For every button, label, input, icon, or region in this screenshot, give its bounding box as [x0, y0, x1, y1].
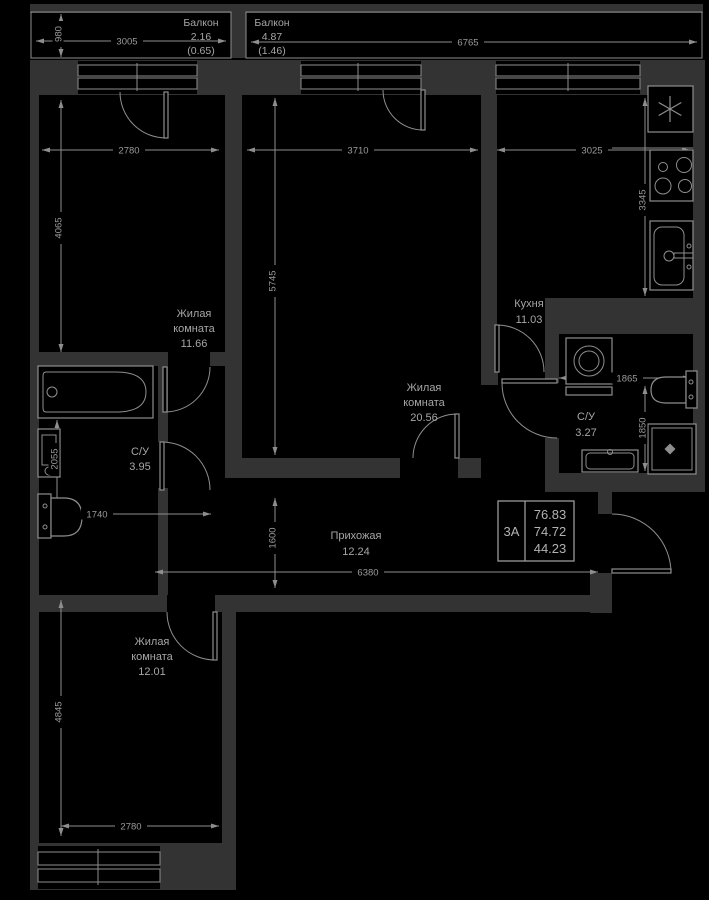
wall: [225, 458, 400, 478]
wall: [231, 13, 246, 58]
door-bathroom1: [502, 379, 557, 438]
svg-text:11.03: 11.03: [516, 314, 543, 326]
dim-balcony-main-width: 6765: [457, 38, 478, 49]
dim-balcony-left-width: 3005: [116, 37, 137, 48]
room-labels: Балкон 2.16 (0.65) Балкон 4.87 (1.46) Жи…: [129, 17, 596, 678]
label-balcony-main: Балкон 4.87 (1.46): [254, 17, 289, 57]
svg-text:12.24: 12.24: [342, 546, 370, 558]
dimension-lines: [36, 14, 697, 836]
window-living2: [301, 61, 421, 94]
wall: [30, 352, 168, 366]
svg-text:Балкон: Балкон: [183, 17, 218, 29]
svg-text:3.27: 3.27: [575, 427, 596, 439]
svg-text:Кухня: Кухня: [514, 298, 543, 310]
svg-text:Жилая: Жилая: [135, 636, 170, 648]
shower-icon: [648, 424, 696, 474]
dim-living2-height: 5745: [268, 270, 279, 291]
label-hallway: Прихожая 12.24: [331, 530, 382, 558]
wall: [458, 458, 481, 478]
kitchen-sink-icon: [650, 221, 693, 290]
svg-text:Прихожая: Прихожая: [331, 530, 382, 542]
ventilation-shaft: [648, 86, 693, 132]
label-living1: Жилая комната 11.66: [173, 308, 215, 350]
area-living: 44.23: [534, 541, 567, 556]
svg-text:4.87: 4.87: [262, 31, 283, 43]
dim-living3-height: 4845: [54, 701, 65, 722]
label-living3: Жилая комната 12.01: [131, 636, 173, 678]
dim-kitchen-height: 3345: [638, 189, 649, 210]
svg-text:20.56: 20.56: [410, 412, 438, 424]
window-living3: [38, 846, 160, 889]
window-kitchen: [496, 61, 640, 94]
door-kitchen: [495, 325, 544, 372]
door-bathroom2: [160, 442, 210, 490]
floor-plan: 3005 6765 980 2780 3710 3025 4065 5745 3…: [0, 0, 709, 900]
svg-text:С/У: С/У: [131, 446, 150, 458]
washing-machine-icon: [566, 338, 612, 395]
balcony-main-outline: [246, 12, 702, 58]
wall: [545, 473, 703, 492]
dim-living2-width: 3710: [347, 146, 368, 157]
floor-plan-drawing: 3005 6765 980 2780 3710 3025 4065 5745 3…: [0, 0, 709, 900]
label-bathroom1: С/У 3.27: [575, 411, 596, 439]
svg-text:Жилая: Жилая: [407, 382, 442, 394]
toilet-bathroom1-icon: [651, 371, 697, 408]
door-entrance: [612, 514, 671, 573]
label-bathroom2: С/У 3.95: [129, 446, 150, 473]
wall: [545, 438, 559, 475]
dim-living1-height: 4065: [54, 217, 65, 238]
label-kitchen: Кухня 11.03: [514, 298, 543, 326]
bathtub-icon: [38, 366, 153, 418]
svg-text:3.95: 3.95: [129, 461, 150, 473]
dim-living1-width: 2780: [118, 146, 139, 157]
svg-text:(0.65): (0.65): [187, 45, 214, 57]
svg-text:12.01: 12.01: [138, 666, 166, 678]
dim-bathroom2-height: 2055: [50, 448, 61, 469]
dim-balcony-depth: 980: [54, 26, 65, 42]
svg-text:комната: комната: [131, 651, 173, 663]
dim-hallway-height: 1600: [268, 527, 279, 548]
area-total: 76.83: [534, 507, 567, 522]
door-living1: [163, 367, 210, 412]
toilet-bathroom2-icon: [38, 494, 82, 538]
area-reduced: 74.72: [534, 524, 567, 539]
dim-kitchen-width: 3025: [581, 146, 602, 157]
wall: [30, 595, 167, 612]
wall: [545, 334, 559, 383]
svg-text:(1.46): (1.46): [258, 45, 285, 57]
svg-text:С/У: С/У: [577, 411, 596, 423]
wall: [481, 372, 498, 385]
label-balcony-left: Балкон 2.16 (0.65): [183, 17, 218, 57]
dim-living3-width: 2780: [120, 822, 141, 833]
door-balcony-living1: [120, 92, 168, 138]
dim-bathroom1-width: 1865: [616, 374, 637, 385]
svg-text:комната: комната: [173, 323, 215, 335]
dim-bathroom1-height: 1850: [638, 417, 649, 438]
sink-bathroom1-icon: [582, 450, 638, 473]
dim-bathroom2-width: 1740: [86, 510, 107, 521]
wall: [598, 492, 612, 514]
door-balcony-living2: [383, 90, 425, 130]
stove-icon: [650, 150, 693, 201]
wall: [225, 95, 242, 478]
door-living3: [167, 612, 217, 660]
apartment-type: 3А: [504, 524, 520, 539]
svg-text:комната: комната: [403, 397, 445, 409]
wall: [545, 298, 693, 334]
window-living1: [78, 61, 197, 94]
apartment-info-box: 3А 76.83 74.72 44.23: [498, 501, 574, 561]
dim-hallway-width: 6380: [357, 568, 378, 579]
dimension-labels: 3005 6765 980 2780 3710 3025 4065 5745 3…: [49, 21, 649, 833]
svg-text:2.16: 2.16: [191, 31, 212, 43]
svg-text:11.66: 11.66: [181, 338, 208, 350]
wall: [158, 488, 168, 595]
wall: [210, 352, 230, 366]
svg-text:Балкон: Балкон: [254, 17, 289, 29]
wall: [215, 595, 612, 612]
svg-text:Жилая: Жилая: [177, 308, 212, 320]
